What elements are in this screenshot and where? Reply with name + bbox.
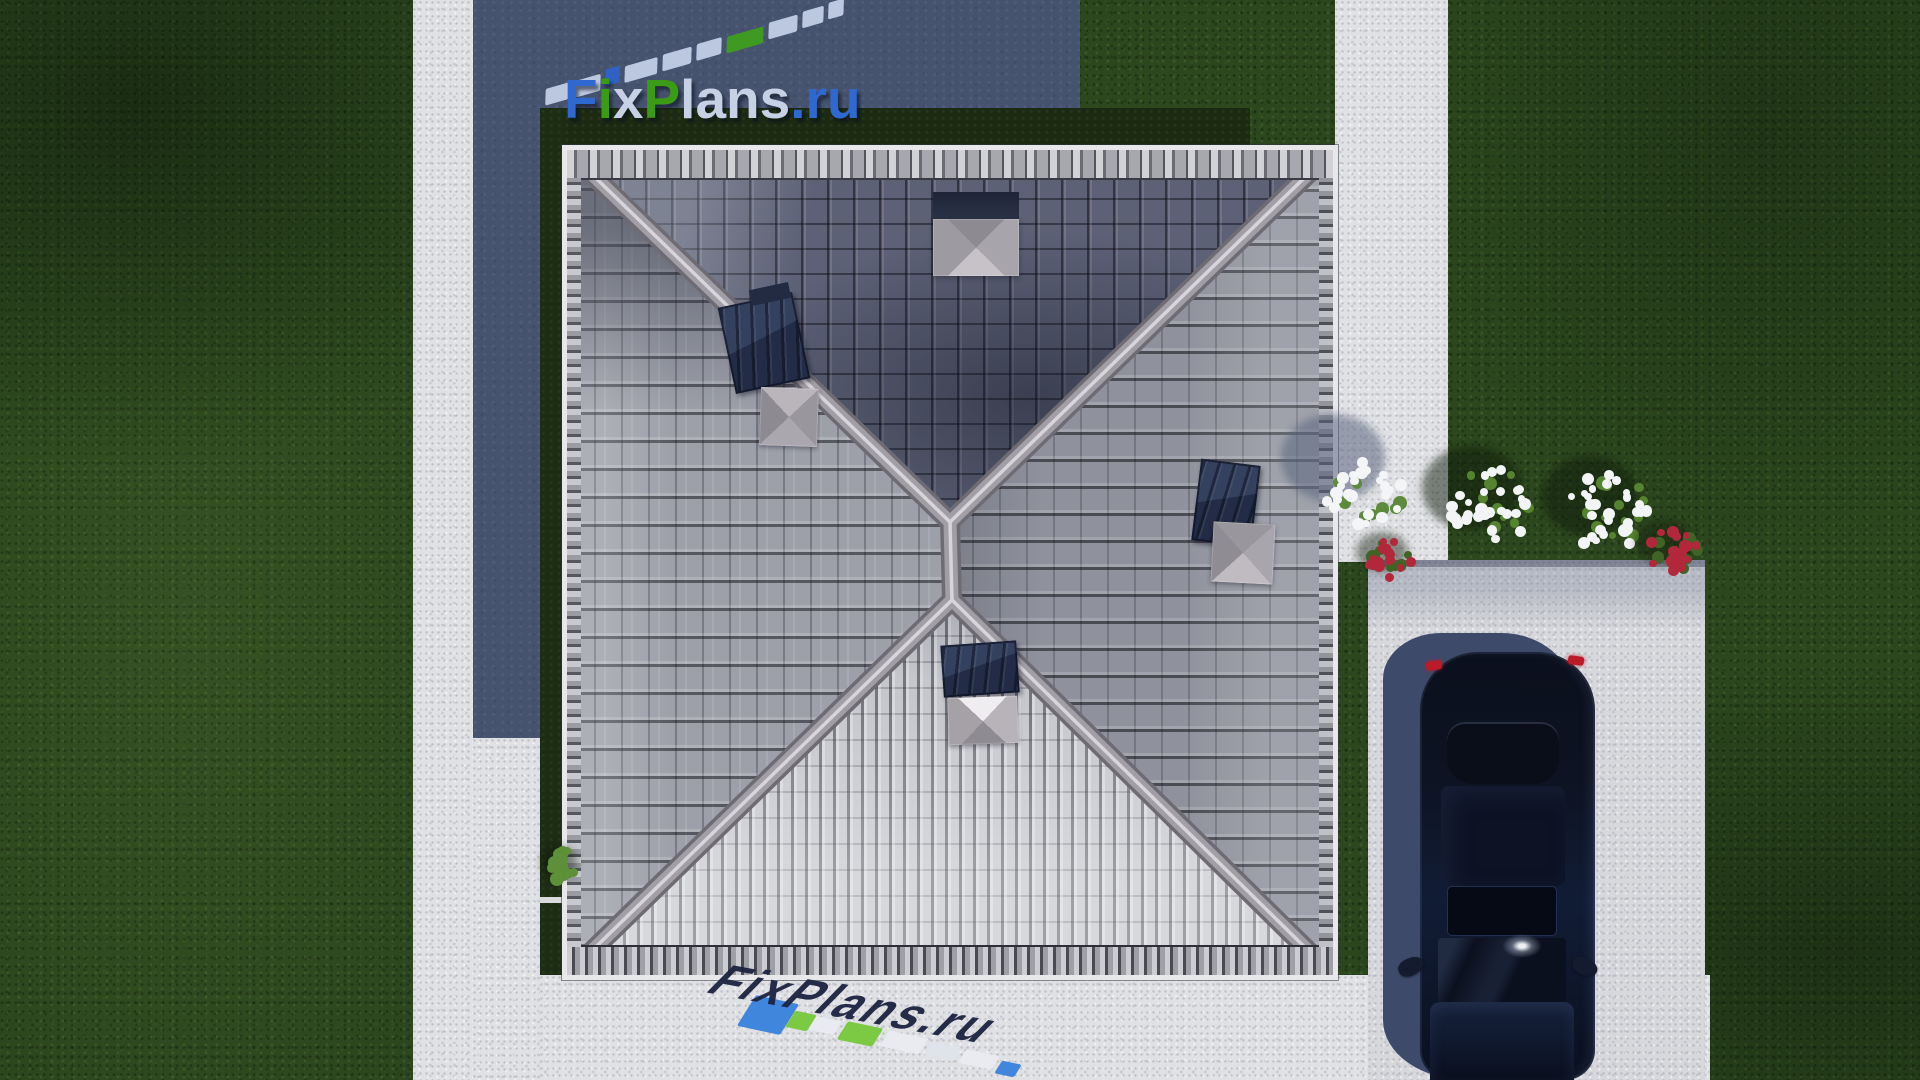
logo-letter: x (613, 68, 644, 130)
car-hood (1430, 1002, 1574, 1080)
car-sunroof (1447, 886, 1557, 936)
eave-tiles-right (1319, 178, 1333, 947)
driveway-edge-shadow (1368, 560, 1705, 630)
chimney-cap-east (1210, 521, 1275, 584)
logo-letter: i (598, 68, 613, 130)
concrete-path-left (413, 0, 473, 1080)
logo-letter: F (564, 68, 598, 130)
logo-letter: n (726, 68, 760, 130)
logo-letter: s (760, 68, 791, 130)
eave-tiles-bottom (567, 945, 1333, 975)
house-shadow-left (473, 0, 540, 738)
logo-letter: P (643, 68, 680, 130)
concrete-path-right (1335, 0, 1448, 562)
skylight-panes (720, 294, 808, 391)
car-rear-window (1447, 722, 1559, 784)
aerial-house-render: FixPlans.ru (0, 0, 1920, 1080)
fixplans-logo: FixPlans.ru (564, 72, 861, 127)
chimney-cap-west (759, 387, 819, 447)
logo-letter: a (695, 68, 726, 130)
logo-letter: r (806, 68, 827, 130)
car-roof-panel (1441, 786, 1565, 886)
car-highlight (1502, 934, 1542, 958)
logo-letter: . (790, 68, 805, 130)
eave-tiles-left (567, 178, 581, 947)
chimney-cap-south (947, 696, 1019, 745)
ridge-cap-row-top (567, 150, 1333, 180)
chimney-cap-north (933, 219, 1019, 276)
skylight-south (940, 640, 1019, 697)
chimney-flashing-north (933, 192, 1019, 220)
concrete-path-left-lower (473, 738, 540, 1080)
logo-letter: u (827, 68, 861, 130)
skylight-panes (942, 643, 1017, 696)
logo-letter: l (680, 68, 695, 130)
